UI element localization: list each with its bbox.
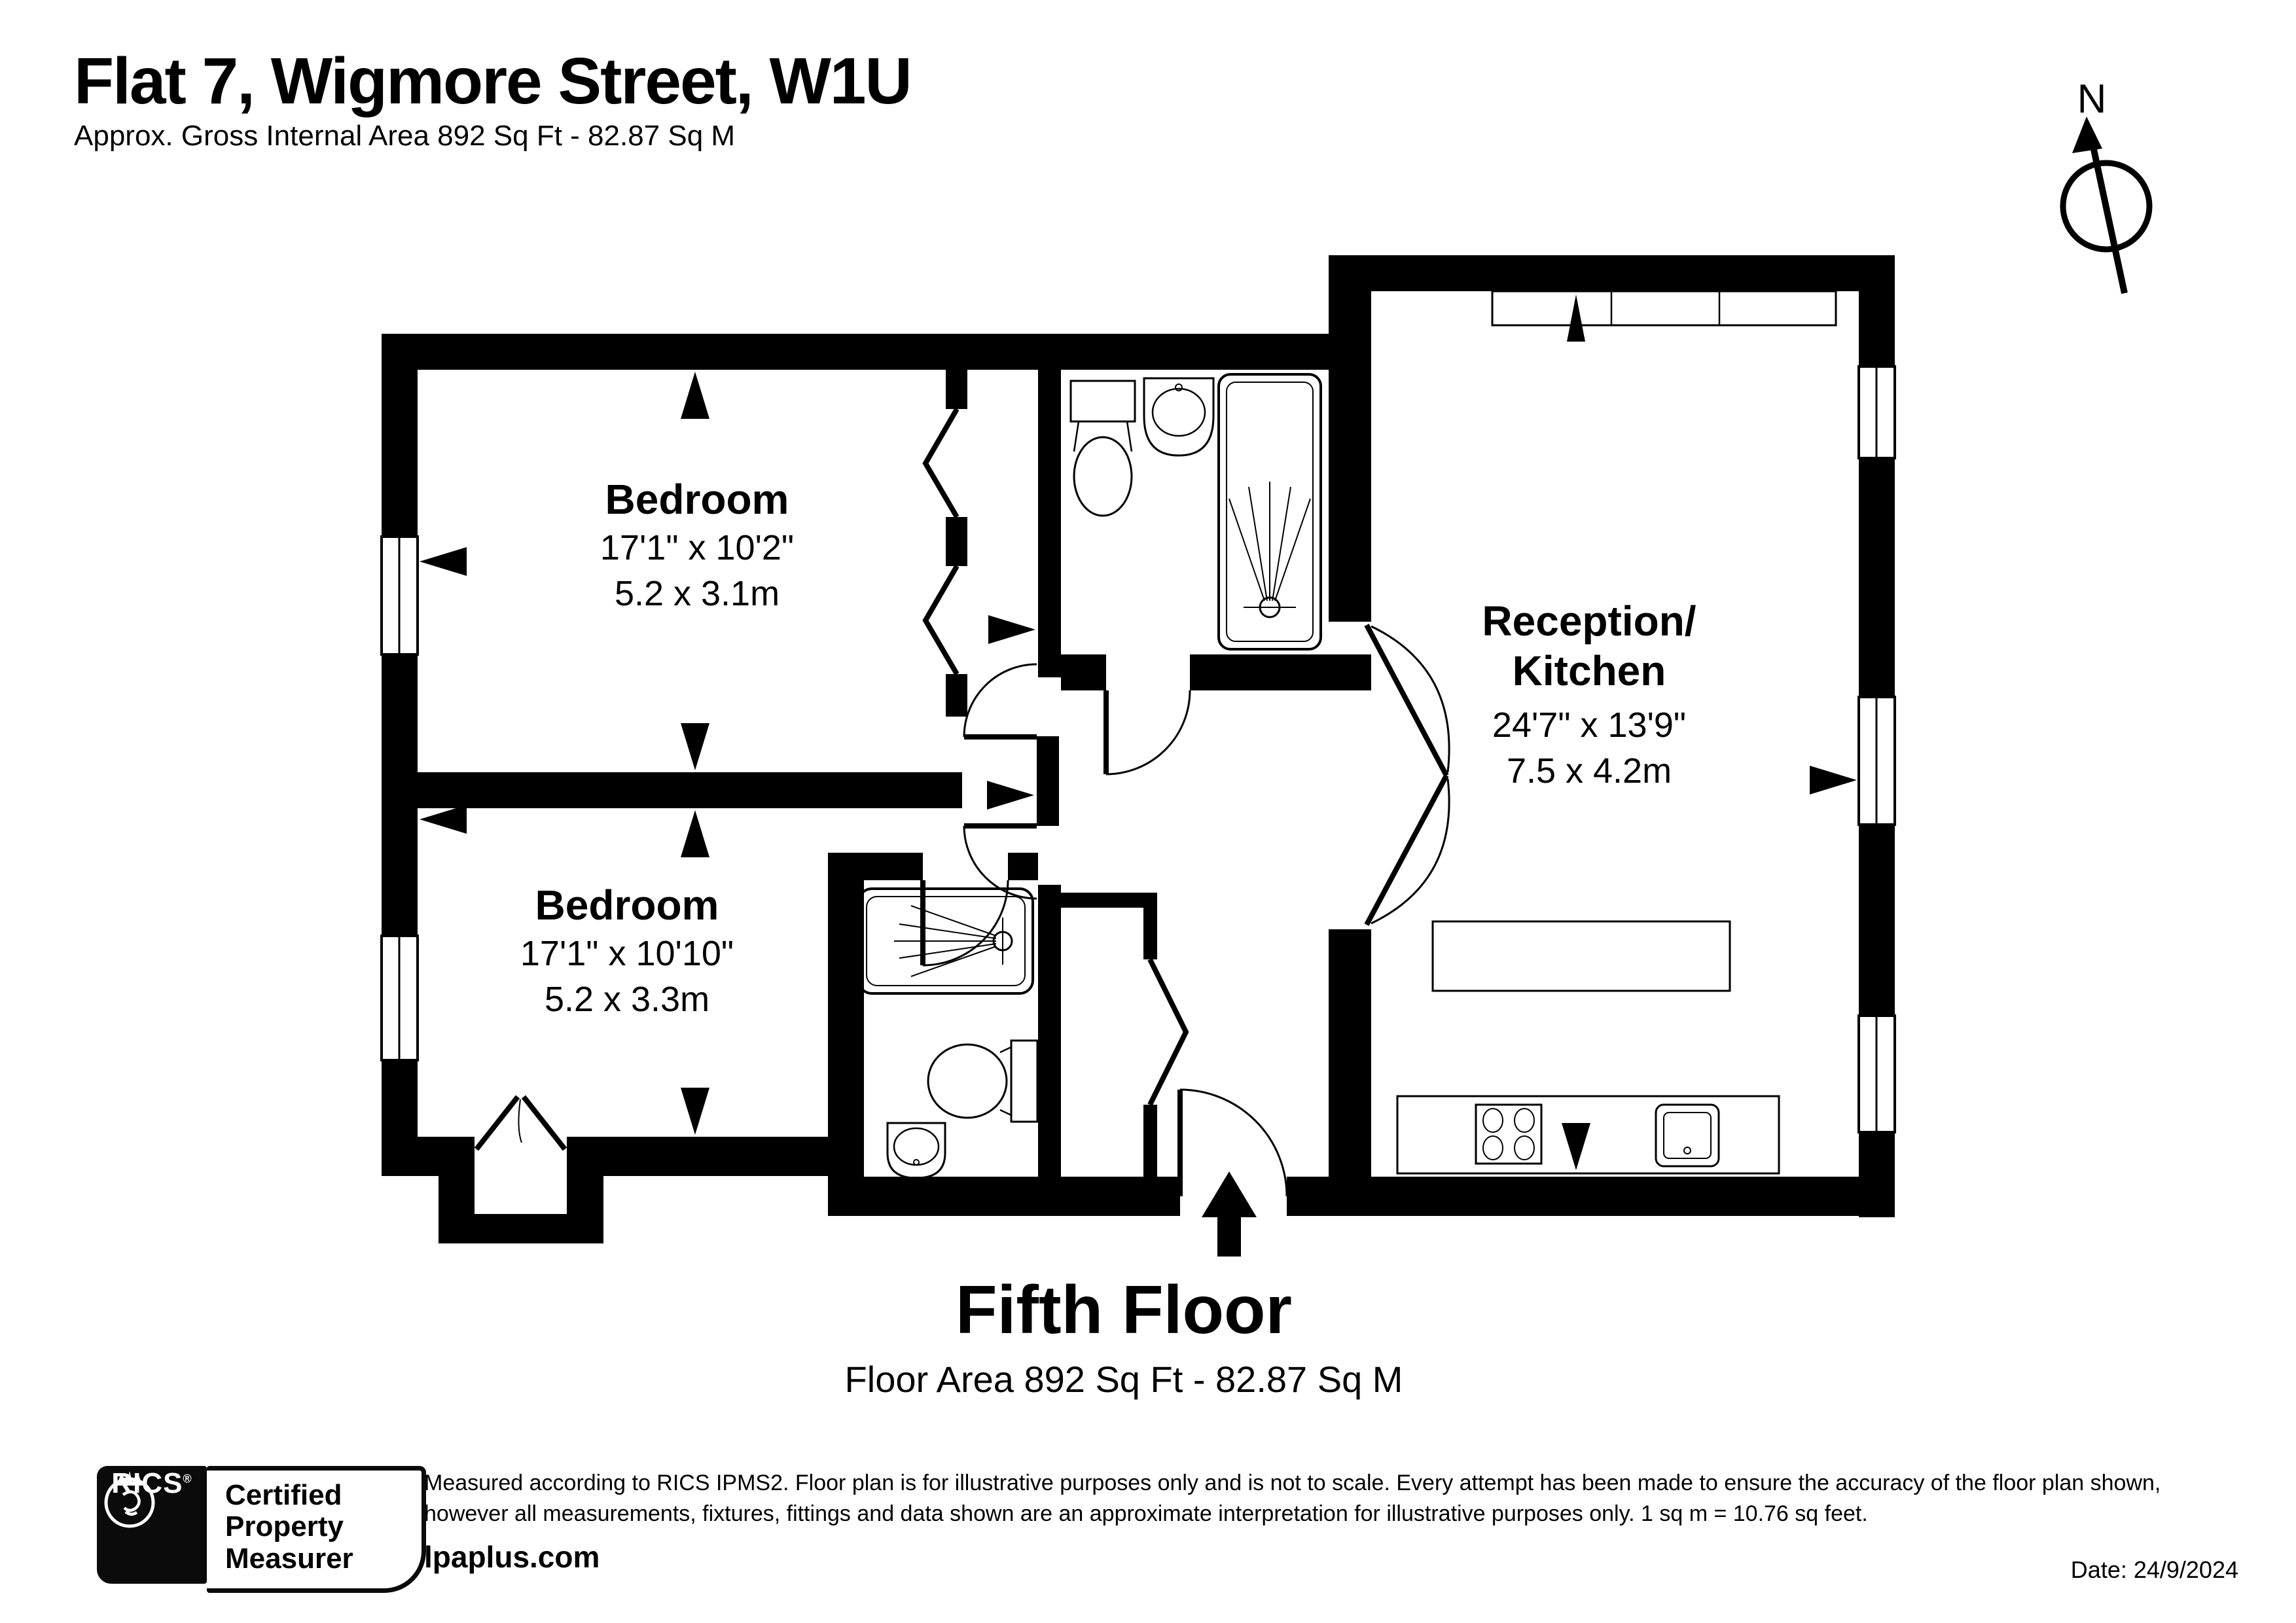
arrow-right-icon [1810, 766, 1857, 794]
window-bedroom-2 [382, 936, 418, 1060]
shower-icon [859, 889, 1033, 993]
room-name-line-2: Kitchen [1393, 647, 1785, 696]
brand-lpaplus: lpaplus.com [424, 1539, 600, 1575]
room-name: Bedroom [431, 881, 823, 931]
island-counter [1433, 921, 1730, 991]
door-balcony [476, 1097, 565, 1149]
arrow-left-icon [420, 547, 467, 576]
certified-property-measurer-box: Certified Property Measurer [207, 1466, 426, 1593]
date-label: Date: 24/9/2024 [1898, 1556, 2238, 1584]
registered-mark: ® [183, 1472, 192, 1485]
room-dims-metric: 5.2 x 3.1m [501, 571, 893, 616]
window-reception-bottom [1859, 1016, 1895, 1132]
floorplan-page: N Flat 7, Wigmore Street, W1U Approx. Gr… [0, 0, 2296, 1623]
compass-icon: N [2063, 77, 2149, 293]
window-reception-top [1859, 366, 1895, 458]
cert-line: Certified [225, 1480, 422, 1511]
door-hall-cupboard-bifold [1150, 959, 1186, 1105]
entrance-arrow-icon [1202, 1171, 1257, 1257]
room-label-bedroom-2: Bedroom 17'1" x 10'10" 5.2 x 3.3m [431, 881, 823, 1022]
arrow-up-icon [681, 810, 709, 857]
cert-line: Property [225, 1511, 422, 1543]
kitchen-sink-icon [1656, 1105, 1719, 1166]
arrow-up-icon [1567, 294, 1585, 342]
arrow-down-icon [681, 1088, 709, 1135]
shower-icon [1219, 374, 1321, 649]
basin-icon [1144, 378, 1213, 455]
toilet-icon [928, 1041, 1037, 1122]
door-bathroom-1 [1106, 690, 1190, 774]
toilet-icon [1071, 381, 1135, 516]
bathroom-2-fixtures [859, 889, 1037, 1178]
rics-certified-measurer-logo: RICS® Certified Property Measurer [97, 1466, 426, 1593]
rics-badge: RICS® [97, 1466, 207, 1584]
kitchen-counter [1397, 1096, 1779, 1173]
room-dims-imperial: 17'1" x 10'2" [501, 525, 893, 571]
room-dims-imperial: 17'1" x 10'10" [431, 931, 823, 976]
room-label-bedroom-1: Bedroom 17'1" x 10'2" 5.2 x 3.1m [501, 475, 893, 616]
room-name: Bedroom [501, 475, 893, 525]
page-title: Flat 7, Wigmore Street, W1U [74, 47, 911, 116]
cert-line: Measurer [225, 1543, 422, 1575]
hob-icon [1476, 1105, 1541, 1164]
basin-icon [888, 1123, 945, 1178]
floor-caption: Fifth Floor Floor Area 892 Sq Ft - 82.87… [698, 1273, 1549, 1400]
disclaimer-line-2: however all measurements, fixtures, fitt… [424, 1501, 1868, 1526]
floor-area: Floor Area 892 Sq Ft - 82.87 Sq M [698, 1358, 1549, 1400]
arrow-right-icon [987, 781, 1034, 810]
disclaimer-line-1: Measured according to RICS IPMS2. Floor … [424, 1471, 2161, 1495]
header: Flat 7, Wigmore Street, W1U Approx. Gros… [74, 47, 911, 152]
arrow-down-icon [681, 723, 709, 770]
room-label-reception-kitchen: Reception/ Kitchen 24'7" x 13'9" 7.5 x 4… [1393, 597, 1785, 794]
window-bedroom-1 [382, 537, 418, 654]
room-name-line-1: Reception/ [1393, 597, 1785, 647]
window-reception-mid [1859, 697, 1895, 825]
arrow-right-icon [988, 615, 1035, 644]
compass-n-label: N [2077, 77, 2107, 122]
arrow-down-icon [1562, 1123, 1590, 1170]
room-dims-metric: 7.5 x 4.2m [1393, 748, 1785, 794]
page-subtitle: Approx. Gross Internal Area 892 Sq Ft - … [74, 120, 911, 152]
wall-cupboards [1492, 291, 1836, 325]
arrow-up-icon [681, 372, 709, 419]
door-bedroom-1 [964, 664, 1037, 737]
floor-title: Fifth Floor [698, 1273, 1549, 1347]
room-dims-metric: 5.2 x 3.3m [431, 976, 823, 1022]
rics-lion-emblem-icon [97, 1466, 162, 1534]
room-dims-imperial: 24'7" x 13'9" [1393, 702, 1785, 748]
disclaimer-text: Measured according to RICS IPMS2. Floor … [424, 1468, 2270, 1529]
bathroom-1-fixtures [1071, 374, 1321, 649]
arrow-left-icon [420, 805, 467, 834]
